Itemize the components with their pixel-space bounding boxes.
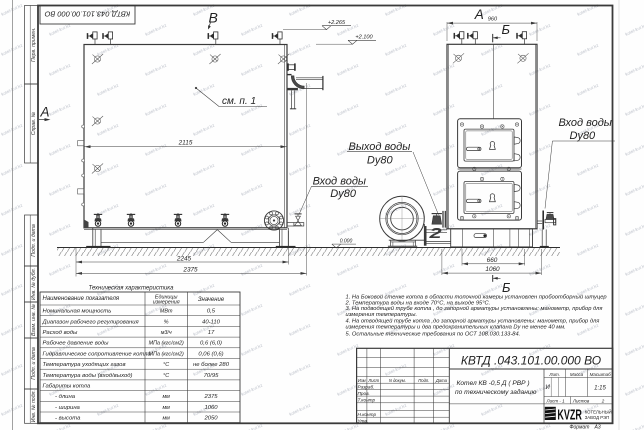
svg-text:Габариты котла: Габариты котла — [43, 384, 91, 390]
svg-text:А: А — [40, 105, 50, 120]
svg-text:Диапазон рабочего регулировани: Диапазон рабочего регулирования — [42, 319, 140, 325]
svg-text:2245: 2245 — [176, 255, 192, 262]
svg-text:А3: А3 — [594, 425, 601, 430]
svg-text:МВт: МВт — [160, 309, 173, 315]
svg-text:40-110: 40-110 — [202, 319, 221, 325]
svg-text:Котел КВ -0,5 Д ( РВР ): Котел КВ -0,5 Д ( РВР ) — [457, 380, 530, 387]
svg-text:KVZR: KVZR — [557, 406, 582, 423]
svg-text:Подп. и дата: Подп. и дата — [31, 224, 37, 257]
svg-text:0,6 (6,0): 0,6 (6,0) — [200, 341, 222, 347]
svg-text:5. Остальные технические треб: 5. Остальные технические требования по О… — [346, 331, 521, 337]
svg-text:4. На отводящей трубе котла ,: 4. На отводящей трубе котла ,до запорной… — [346, 317, 600, 324]
svg-text:Масштаб: Масштаб — [590, 372, 611, 377]
svg-text:Масса: Масса — [570, 372, 584, 377]
svg-text:Б: Б — [502, 22, 511, 37]
svg-text:70/95: 70/95 — [204, 373, 219, 379]
svg-text:Dy80: Dy80 — [367, 154, 394, 166]
svg-text:Листов: Листов — [572, 398, 590, 403]
svg-text:2050: 2050 — [203, 416, 218, 422]
svg-text:0.000: 0.000 — [340, 239, 353, 245]
svg-text:Изм: Изм — [358, 378, 366, 383]
svg-text:Взам. инв. №: Взам. инв. № — [31, 304, 37, 336]
svg-text:°С: °С — [163, 362, 169, 368]
svg-text:Рабочее давление воды: Рабочее давление воды — [43, 341, 110, 347]
svg-text:+2.265: +2.265 — [328, 20, 346, 26]
svg-text:2: 2 — [601, 398, 605, 403]
svg-text:Подп. и дата: Подп. и дата — [31, 347, 37, 380]
svg-text:мм: мм — [162, 394, 170, 400]
svg-text:+2.100: +2.100 — [355, 35, 373, 41]
svg-text:мм: мм — [162, 405, 170, 411]
svg-text:Дата: Дата — [435, 378, 448, 383]
svg-text:960: 960 — [488, 17, 498, 23]
svg-text:И: И — [546, 385, 551, 391]
svg-text:°С: °С — [163, 373, 169, 379]
svg-text:МПа (кгс/см2): МПа (кгс/см2) — [149, 351, 184, 357]
svg-text:1:15: 1:15 — [594, 385, 606, 391]
svg-text:Номинальная мощность: Номинальная мощность — [43, 309, 112, 315]
svg-text:1060: 1060 — [485, 266, 500, 273]
svg-text:Инв. № подл.: Инв. № подл. — [31, 390, 37, 422]
svg-text:2375: 2375 — [182, 267, 198, 274]
svg-text:Н.контр: Н.контр — [358, 412, 377, 417]
svg-text:660: 660 — [487, 257, 498, 264]
svg-text:1. На Боковой стенке котла в: 1. На Боковой стенке котла в области топ… — [346, 293, 608, 300]
svg-text:ЗАВОД РЭП: ЗАВОД РЭП — [585, 415, 610, 420]
svg-text:Вход воды: Вход воды — [559, 117, 612, 129]
svg-text:Значение: Значение — [198, 297, 225, 303]
svg-text:N докум.: N докум. — [389, 378, 406, 383]
svg-text:0,5: 0,5 — [207, 309, 216, 315]
svg-text:А: А — [474, 7, 484, 22]
svg-text:Лист - 1: Лист - 1 — [546, 398, 566, 403]
svg-text:Подп.: Подп. — [418, 378, 429, 383]
svg-text:Dy80: Dy80 — [330, 188, 357, 200]
svg-text:КВТД.043.101.00.000 ВО: КВТД.043.101.00.000 ВО — [45, 10, 131, 19]
svg-text:В: В — [209, 9, 218, 25]
svg-text:Dy80: Dy80 — [570, 130, 597, 142]
svg-text:Справ. №: Справ. № — [31, 111, 37, 135]
svg-text:Перв. примен.: Перв. примен. — [31, 28, 37, 62]
svg-text:Техническая характеристика: Техническая характеристика — [89, 286, 175, 292]
svg-text:Выход воды: Выход воды — [349, 141, 411, 153]
svg-text:- высота: - высота — [55, 416, 81, 422]
svg-text:измерения температуры и два пр: измерения температуры и два предохраните… — [346, 324, 566, 330]
svg-text:2375: 2375 — [203, 394, 218, 400]
svg-text:1060: 1060 — [204, 405, 218, 411]
svg-text:Б: Б — [502, 280, 511, 295]
svg-text:измерения: измерения — [153, 300, 180, 306]
svg-text:Пров.: Пров. — [358, 391, 370, 396]
svg-text:0,06 (0,6): 0,06 (0,6) — [198, 351, 223, 357]
svg-text:17: 17 — [208, 330, 215, 336]
svg-text:- длина: - длина — [55, 394, 76, 400]
svg-text:Расход воды: Расход воды — [43, 330, 79, 336]
svg-text:КОТЕЛЬНЫЙ: КОТЕЛЬНЫЙ — [585, 409, 612, 414]
svg-text:%: % — [164, 319, 169, 325]
svg-text:Температура уходящих газов: Температура уходящих газов — [43, 362, 126, 368]
svg-text:Вход воды: Вход воды — [313, 175, 366, 187]
svg-text:- ширина: - ширина — [55, 405, 81, 411]
svg-text:МПа (кгс/см2): МПа (кгс/см2) — [149, 341, 184, 347]
svg-text:Гидравлическое сопротивление к: Гидравлическое сопротивление котла — [43, 351, 152, 357]
svg-text:Разраб.: Разраб. — [358, 385, 375, 390]
svg-text:м3/ч: м3/ч — [161, 330, 172, 336]
svg-text:Т.контр: Т.контр — [358, 398, 376, 403]
svg-text:Лист: Лист — [367, 378, 379, 383]
svg-text:Наименование показателя: Наименование показателя — [43, 296, 120, 302]
svg-text:по техническому заданию: по техническому заданию — [455, 388, 537, 396]
svg-text:2115: 2115 — [178, 140, 193, 147]
svg-text:2: 2 — [428, 224, 442, 240]
svg-text:КВТД .043.101.00.000 ВО: КВТД .043.101.00.000 ВО — [461, 353, 601, 367]
svg-text:Лит.: Лит. — [548, 372, 560, 377]
svg-text:измерения температуры.: измерения температуры. — [346, 312, 418, 318]
svg-text:мм: мм — [162, 416, 170, 422]
svg-text:Формат: Формат — [570, 425, 590, 430]
svg-text:не более 280: не более 280 — [193, 362, 230, 368]
svg-text:см. п. 1: см. п. 1 — [222, 96, 256, 107]
svg-text:Температура воды (вход/выход): Температура воды (вход/выход) — [43, 373, 133, 379]
svg-text:Инв. № дубл.: Инв. № дубл. — [31, 268, 37, 300]
svg-text:Утв.: Утв. — [358, 419, 369, 424]
